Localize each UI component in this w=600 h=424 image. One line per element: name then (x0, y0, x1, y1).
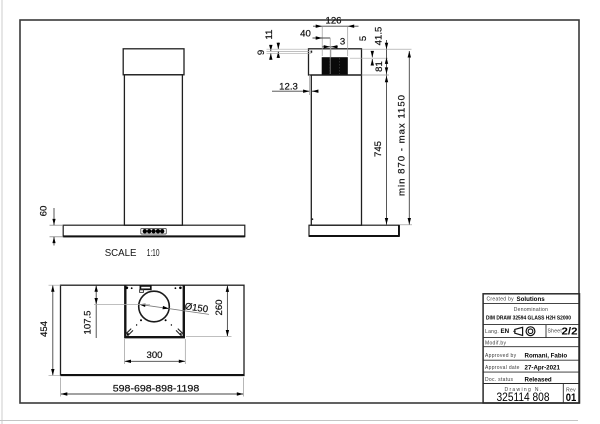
svg-text:260: 260 (214, 299, 225, 315)
svg-text:126: 126 (325, 16, 341, 27)
svg-text:Doc. status: Doc. status (485, 377, 514, 383)
svg-text:Sheet: Sheet (548, 329, 563, 335)
svg-text:11: 11 (264, 30, 275, 40)
svg-text:81: 81 (374, 61, 385, 72)
svg-text:745: 745 (373, 141, 384, 157)
svg-text:Romani, Fabio: Romani, Fabio (525, 352, 568, 359)
svg-text:41.5: 41.5 (374, 27, 385, 46)
svg-text:01: 01 (566, 392, 577, 404)
svg-text:Approval date: Approval date (485, 365, 520, 371)
svg-text:300: 300 (146, 350, 162, 361)
svg-text:DIM DRAW 32594 GLASS H2H S2000: DIM DRAW 32594 GLASS H2H S2000 (486, 316, 571, 322)
svg-text:40: 40 (300, 28, 311, 39)
svg-text:Modif.by: Modif.by (485, 341, 506, 347)
svg-text:598-698-898-1198: 598-698-898-1198 (113, 383, 200, 394)
svg-text:Approved by: Approved by (485, 353, 517, 359)
svg-text:min 870 - max 1150: min 870 - max 1150 (397, 94, 408, 196)
svg-text:454: 454 (39, 320, 50, 337)
svg-text:Solutions: Solutions (517, 296, 546, 303)
svg-text:Released: Released (525, 376, 552, 383)
svg-text:3: 3 (340, 37, 345, 48)
svg-text:1:10: 1:10 (147, 248, 160, 259)
svg-text:EN: EN (501, 328, 510, 335)
svg-text:9: 9 (256, 50, 267, 55)
svg-text:2/2: 2/2 (562, 326, 578, 337)
svg-text:Created by: Created by (487, 297, 515, 303)
svg-text:Lang.: Lang. (485, 329, 499, 335)
svg-text:Denomination: Denomination (514, 307, 548, 313)
svg-text:SCALE: SCALE (105, 248, 137, 259)
svg-text:325114 808: 325114 808 (497, 390, 550, 404)
svg-text:5: 5 (358, 36, 369, 41)
svg-text:27-Apr-2021: 27-Apr-2021 (525, 364, 561, 371)
svg-text:60: 60 (39, 206, 50, 217)
svg-text:107.5: 107.5 (82, 310, 93, 334)
